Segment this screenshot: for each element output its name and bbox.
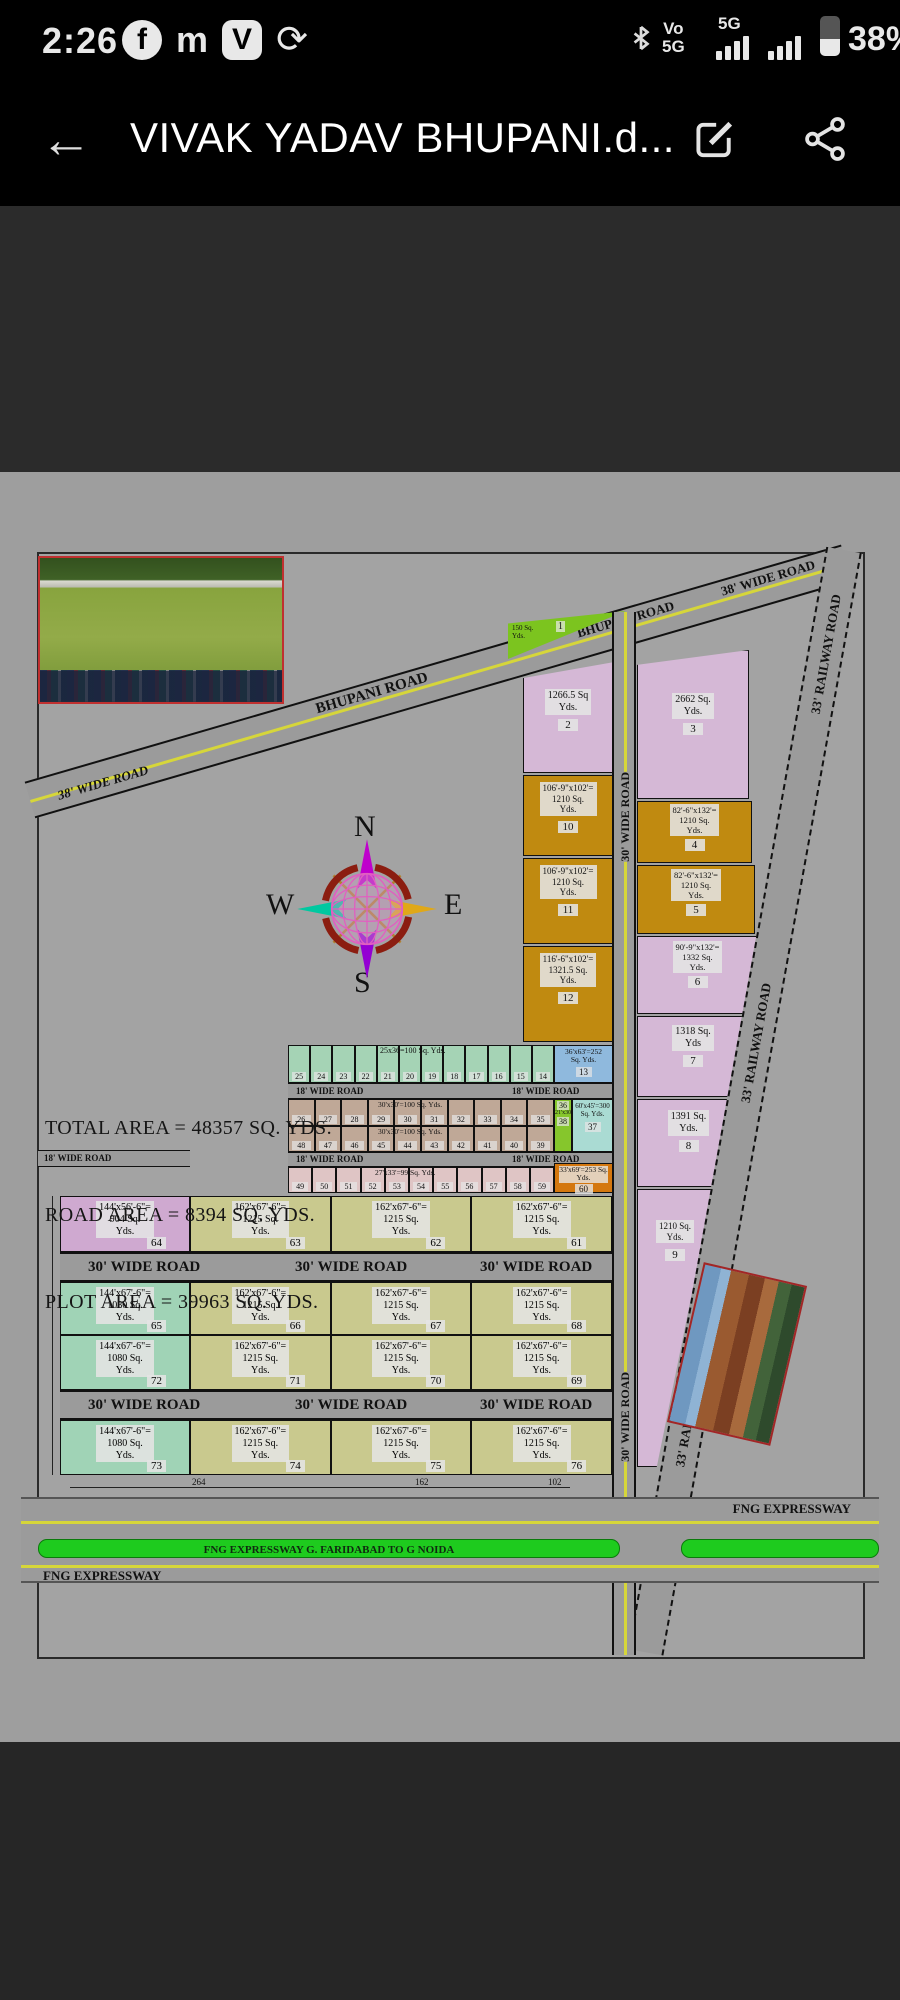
dim-264: 264 xyxy=(192,1477,206,1487)
plot-36-38: 36 21'x30'=70 38 xyxy=(554,1099,572,1152)
phone-screen: 2:26 f m V ⟳ Vo5G 5G 38% ← VIVAK YADAV B… xyxy=(0,0,900,2000)
plot-5: 82'-6"x132'=1210 Sq.Yds. 5 xyxy=(637,865,755,934)
road-30ft-lower-label-2: 30' WIDE ROAD xyxy=(295,1397,407,1414)
battery-percent: 38% xyxy=(848,20,900,59)
road-30ft-upper-label-3: 30' WIDE ROAD xyxy=(480,1259,592,1276)
volte-indicator: Vo5G xyxy=(662,20,685,56)
signal-bars-sim2 xyxy=(768,36,801,60)
plot-51: 51 xyxy=(336,1167,360,1193)
dim-102: 102 xyxy=(548,1477,562,1487)
pink-row-dims: 27'x33'=99 Sq. Yds. xyxy=(375,1168,435,1177)
plot-57: 57 xyxy=(482,1167,506,1193)
plot-56: 56 xyxy=(457,1167,481,1193)
plot-55: 55 xyxy=(433,1167,457,1193)
plot-40: 40 xyxy=(501,1126,528,1152)
facebook-notification-icon: f xyxy=(122,20,162,60)
plot-11: 106'-9"x102'=1210 Sq.Yds. 11 xyxy=(523,858,613,944)
plot-76: 162'x67'-6"=1215 Sq.Yds.76 xyxy=(471,1420,612,1475)
plot-14: 14 xyxy=(532,1045,554,1083)
app-bar: ← VIVAK YADAV BHUPANI.d... xyxy=(0,78,900,206)
plot-74: 162'x67'-6"=1215 Sq.Yds.74 xyxy=(190,1420,331,1475)
plot-70: 162'x67'-6"=1215 Sq.Yds.70 xyxy=(331,1335,472,1390)
compass-graphic xyxy=(292,834,442,984)
green-row-dims: 25x36=100 Sq. Yds. xyxy=(380,1046,446,1055)
golf-course-photo xyxy=(38,556,284,704)
plot-4: 82'-6"x132'=1210 Sq.Yds. 4 xyxy=(637,801,752,863)
plot-60: 33'x69'=253 Sq. Yds. 60 xyxy=(554,1163,613,1193)
total-area-text: TOTAL AREA = 48357 SQ. YDS. xyxy=(45,1114,332,1143)
plot-15: 15 xyxy=(510,1045,532,1083)
status-bar: 2:26 f m V ⟳ Vo5G 5G 38% xyxy=(0,0,900,78)
plot-35: 35 xyxy=(527,1099,554,1126)
expressway-label-bottom: FNG EXPRESSWAY xyxy=(43,1568,161,1584)
document-title: VIVAK YADAV BHUPANI.d... xyxy=(130,114,675,162)
plot-61: 162'x67'-6"=1215 Sq.Yds.61 xyxy=(471,1196,612,1252)
plot-68: 162'x67'-6"=1215 Sq.Yds.68 xyxy=(471,1282,612,1335)
plot-2: 1266.5 SqYds. 2 xyxy=(523,660,613,773)
road-30ft-vertical-label-top: 30' WIDE ROAD xyxy=(618,772,633,862)
viewer-bottom-area xyxy=(0,1742,900,2000)
dim-162: 162 xyxy=(415,1477,429,1487)
expressway-label-top: FNG EXPRESSWAY xyxy=(733,1501,851,1517)
plot-32: 32 xyxy=(448,1099,475,1126)
road-18ft-label-right: 18' WIDE ROAD xyxy=(512,1086,579,1096)
plot-59: 59 xyxy=(530,1167,554,1193)
expressway-median-right xyxy=(681,1539,879,1558)
plot-62: 162'x67'-6"=1215 Sq.Yds.62 xyxy=(331,1196,472,1252)
dimension-line-bottom xyxy=(70,1487,570,1488)
plot-75: 162'x67'-6"=1215 Sq.Yds.75 xyxy=(331,1420,472,1475)
plot-18: 18 xyxy=(443,1045,465,1083)
brown-top-dims: 30'x30'=100 Sq. Yds. xyxy=(378,1100,442,1109)
video-app-notification-icon: V xyxy=(222,20,262,60)
plot-67: 162'x67'-6"=1215 Sq.Yds.67 xyxy=(331,1282,472,1335)
plot-17: 17 xyxy=(465,1045,487,1083)
plot-22: 22 xyxy=(355,1045,377,1083)
mail-notification-icon: m xyxy=(172,20,212,60)
plot-33: 33 xyxy=(474,1099,501,1126)
battery-icon xyxy=(820,16,840,56)
edit-button[interactable] xyxy=(688,114,740,171)
plot-3: 2662 Sq.Yds. 3 xyxy=(637,650,749,799)
expressway-banner-text: FNG EXPRESSWAY G. FARIDABAD TO G NOIDA xyxy=(204,1544,455,1556)
brown-bottom-dims: 30'x30'=100 Sq. Yds. xyxy=(378,1127,442,1136)
sync-notification-icon: ⟳ xyxy=(272,20,312,60)
fng-expressway: FNG EXPRESSWAY FNG EXPRESSWAY G. FARIDAB… xyxy=(21,1497,879,1583)
compass-west: W xyxy=(266,888,294,922)
compass-rose: N S W E xyxy=(272,816,462,1002)
area-summary: TOTAL AREA = 48357 SQ. YDS. ROAD AREA = … xyxy=(45,1056,332,1375)
plot-73: 144'x67'-6"=1080 Sq.Yds.73 xyxy=(60,1420,190,1475)
compass-east: E xyxy=(444,888,462,922)
signal-bars-sim1 xyxy=(716,36,749,60)
plot-34: 34 xyxy=(501,1099,528,1126)
plot-10: 106'-9"x102'=1210 Sq.Yds. 10 xyxy=(523,775,613,856)
bluetooth-icon xyxy=(630,22,652,59)
plot-39: 39 xyxy=(527,1126,554,1152)
road-30ft-vertical-label-bottom: 30' WIDE ROAD xyxy=(618,1372,633,1462)
clock: 2:26 xyxy=(42,20,118,62)
plot-13: 36'x63'=252 Sq. Yds. 13 xyxy=(554,1045,613,1083)
network-type-label: 5G xyxy=(718,14,741,34)
plot-23: 23 xyxy=(332,1045,354,1083)
share-button[interactable] xyxy=(800,114,850,169)
plot-28: 28 xyxy=(341,1099,368,1126)
plot-42: 42 xyxy=(448,1126,475,1152)
road-area-text: ROAD AREA = 8394 SQ. YDS. xyxy=(45,1201,332,1230)
plot-58: 58 xyxy=(506,1167,530,1193)
back-button[interactable]: ← xyxy=(40,112,92,168)
plot-69: 162'x67'-6"=1215 Sq.Yds.69 xyxy=(471,1335,612,1390)
plot-41: 41 xyxy=(474,1126,501,1152)
expressway-median-left: FNG EXPRESSWAY G. FARIDABAD TO G NOIDA xyxy=(38,1539,620,1558)
plot-16: 16 xyxy=(488,1045,510,1083)
road-30ft-lower-label-1: 30' WIDE ROAD xyxy=(88,1397,200,1414)
plot-12: 116'-6"x102'=1321.5 Sq.Yds. 12 xyxy=(523,946,613,1042)
big-plot-row-4: 144'x67'-6"=1080 Sq.Yds.73162'x67'-6"=12… xyxy=(60,1420,612,1475)
plot-46: 46 xyxy=(341,1126,368,1152)
plot-6: 90'-9"x132'=1332 Sq.Yds. 6 xyxy=(637,936,758,1014)
plot-area-text: PLOT AREA = 39963 SQ. YDS. xyxy=(45,1288,332,1317)
plot-37: 60'x45'=300 Sq. Yds. 37 xyxy=(572,1099,613,1152)
road-30ft-lower-label-3: 30' WIDE ROAD xyxy=(480,1397,592,1414)
expressway-yellow-line-top xyxy=(21,1521,879,1524)
